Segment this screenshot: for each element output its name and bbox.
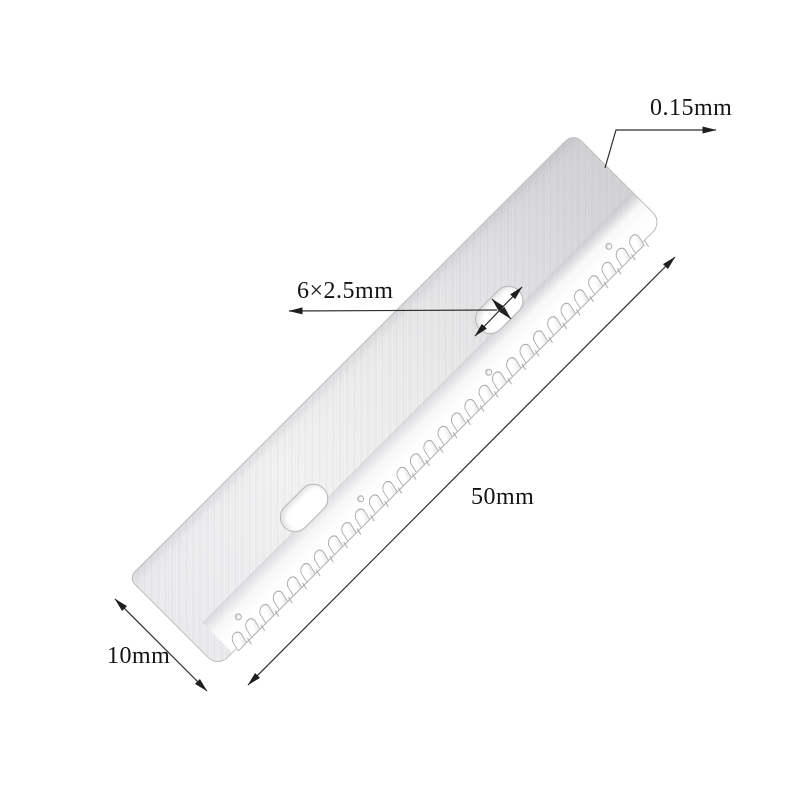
diagram-canvas: 0.15mm 6×2.5mm 50mm 10mm	[0, 0, 800, 800]
length-dimension-line	[248, 257, 675, 685]
thickness-label: 0.15mm	[650, 95, 732, 121]
slot-size-label: 6×2.5mm	[297, 278, 393, 304]
width-label: 10mm	[107, 643, 170, 669]
slot-leader-line	[289, 310, 497, 311]
thickness-leader-line	[605, 130, 716, 168]
slot-length-arrow	[475, 287, 522, 336]
length-label: 50mm	[471, 484, 534, 510]
